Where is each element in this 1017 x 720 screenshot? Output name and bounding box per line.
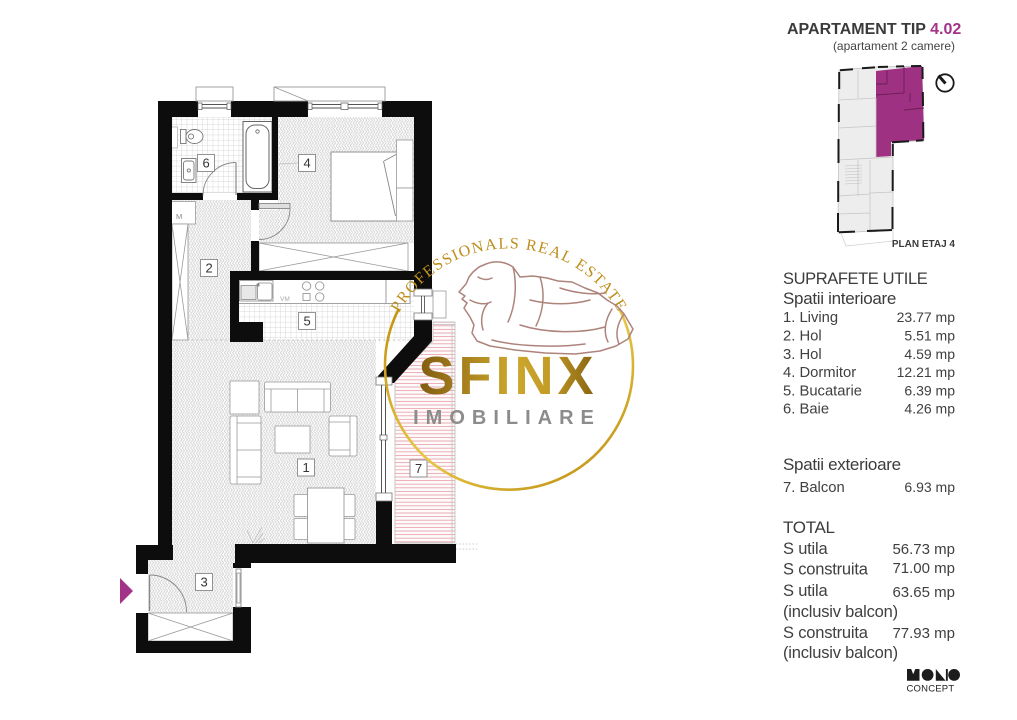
svg-text:6.39 mp: 6.39 mp (904, 383, 955, 399)
svg-text:APARTAMENT TIP 4.02: APARTAMENT TIP 4.02 (787, 21, 961, 38)
svg-text:12.21 mp: 12.21 mp (897, 364, 956, 380)
svg-text:SFINX: SFINX (418, 346, 597, 406)
svg-text:5. Bucatarie: 5. Bucatarie (783, 384, 862, 400)
svg-text:71.00 mp: 71.00 mp (892, 560, 955, 577)
svg-text:56.73 mp: 56.73 mp (892, 541, 955, 558)
svg-text:77.93 mp: 77.93 mp (892, 625, 955, 642)
svg-text:7. Balcon: 7. Balcon (783, 480, 845, 496)
svg-text:IMOBILIARE: IMOBILIARE (413, 407, 601, 429)
svg-text:2. Hol: 2. Hol (783, 329, 822, 345)
svg-text:3: 3 (201, 575, 208, 590)
svg-text:4.59 mp: 4.59 mp (904, 346, 955, 362)
svg-text:SUPRAFETE UTILE: SUPRAFETE UTILE (783, 270, 928, 288)
svg-text:S utila: S utila (783, 540, 828, 558)
svg-text:S construita: S construita (783, 561, 869, 579)
svg-text:6: 6 (203, 156, 210, 171)
svg-text:4. Dormitor: 4. Dormitor (783, 365, 856, 381)
svg-text:2: 2 (206, 261, 213, 276)
svg-text:TOTAL: TOTAL (783, 518, 835, 537)
svg-text:7: 7 (415, 461, 422, 476)
svg-text:5: 5 (304, 314, 311, 329)
svg-text:4: 4 (304, 156, 311, 171)
svg-text:S construita: S construita (783, 624, 869, 642)
svg-text:(inclusiv balcon): (inclusiv balcon) (783, 644, 898, 662)
svg-text:M: M (176, 212, 182, 221)
svg-text:Spatii interioare: Spatii interioare (783, 289, 896, 308)
svg-text:1: 1 (303, 460, 310, 475)
svg-text:Spatii exterioare: Spatii exterioare (783, 455, 901, 474)
svg-text:23.77 mp: 23.77 mp (897, 309, 956, 325)
svg-text:CONCEPT: CONCEPT (907, 684, 955, 695)
svg-text:63.65 mp: 63.65 mp (892, 584, 955, 601)
svg-text:6.93 mp: 6.93 mp (904, 479, 955, 495)
svg-text:(inclusiv balcon): (inclusiv balcon) (783, 603, 898, 621)
svg-text:4.26 mp: 4.26 mp (904, 401, 955, 417)
svg-text:S utila: S utila (783, 582, 828, 600)
svg-text:VM: VM (280, 296, 290, 303)
svg-text:PLAN ETAJ 4: PLAN ETAJ 4 (892, 239, 956, 250)
svg-text:1. Living: 1. Living (783, 310, 838, 326)
svg-text:3. Hol: 3. Hol (783, 347, 822, 363)
svg-text:(apartament 2 camere): (apartament 2 camere) (833, 39, 955, 53)
svg-text:6. Baie: 6. Baie (783, 402, 829, 418)
svg-text:5.51 mp: 5.51 mp (904, 328, 955, 344)
